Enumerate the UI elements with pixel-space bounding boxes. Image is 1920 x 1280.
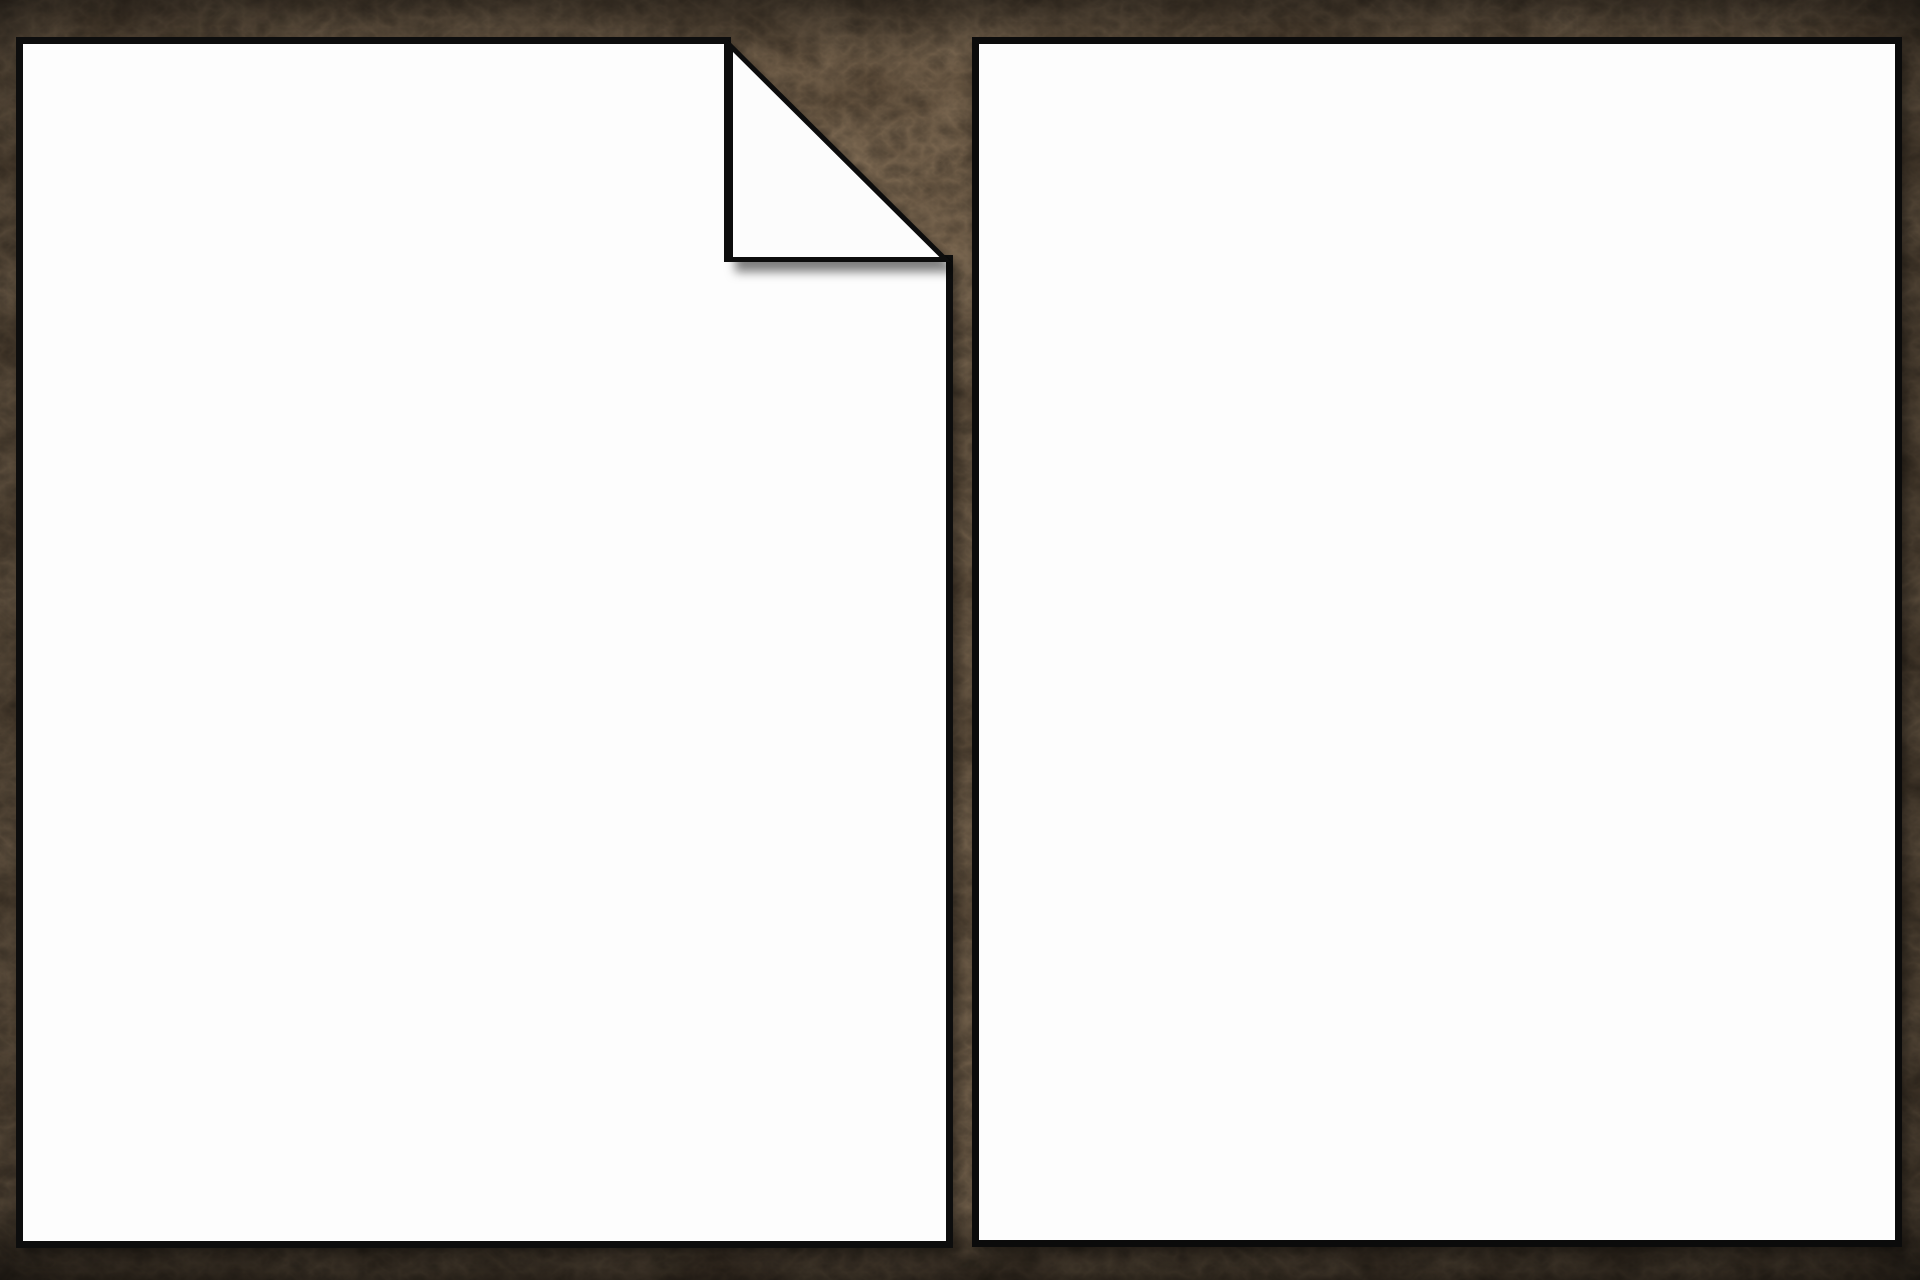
page-right-content	[979, 44, 1895, 1240]
page-left-folded-corner[interactable]	[731, 46, 946, 260]
page-right[interactable]	[972, 37, 1902, 1247]
desk-scene	[0, 0, 1920, 1280]
page-left-content	[40, 70, 680, 1170]
